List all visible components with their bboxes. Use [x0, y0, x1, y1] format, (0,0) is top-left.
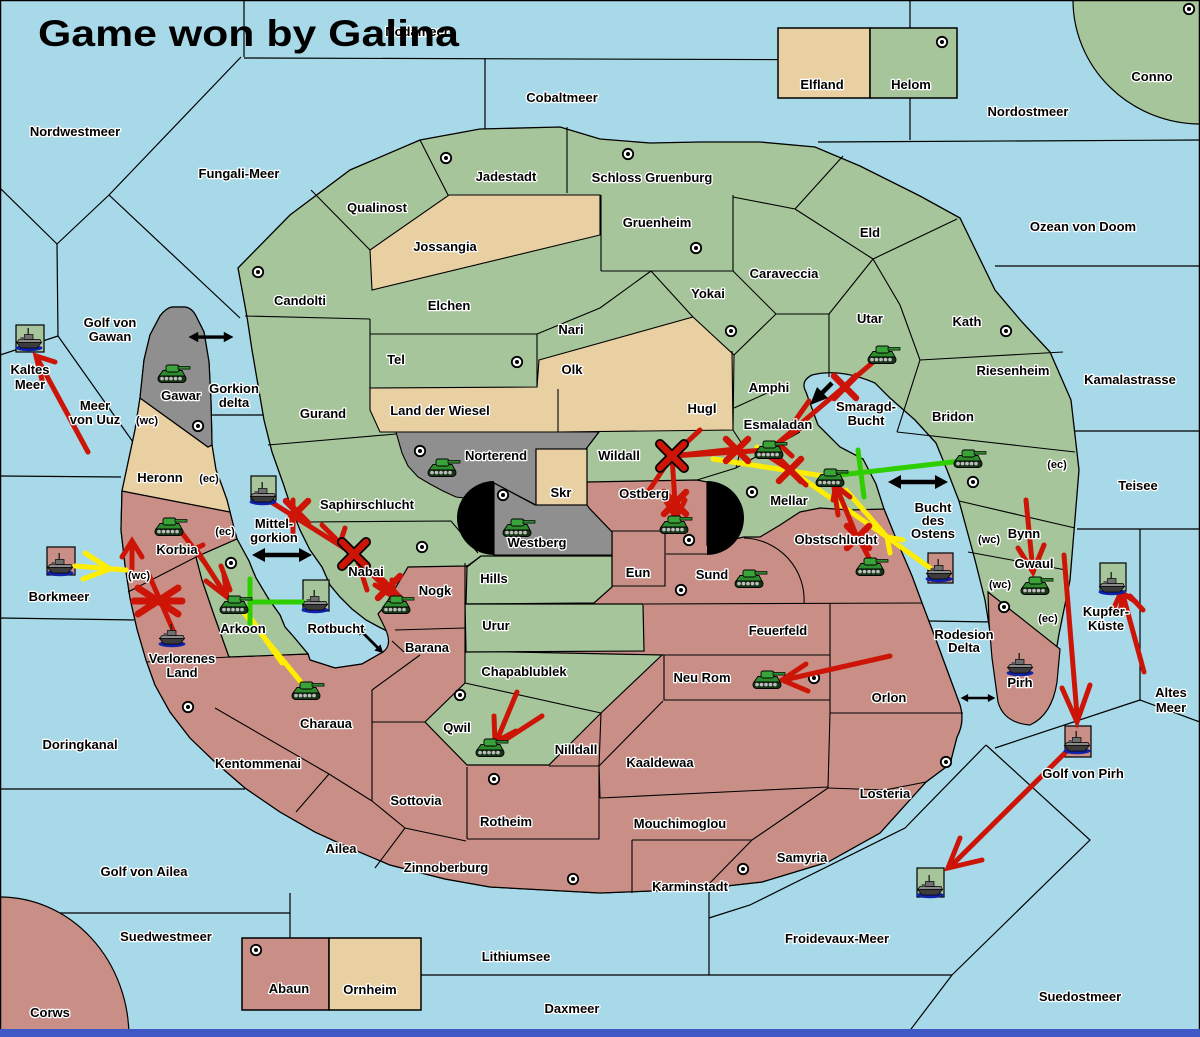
- svg-text:(wc): (wc): [136, 415, 158, 427]
- svg-text:(wc): (wc): [989, 579, 1011, 591]
- svg-text:Smaragd-: Smaragd-: [836, 399, 896, 414]
- svg-text:Helom: Helom: [891, 77, 931, 92]
- svg-text:Kamalastrasse: Kamalastrasse: [1084, 372, 1176, 387]
- svg-text:Nilldall: Nilldall: [555, 742, 598, 757]
- svg-text:Neu Rom: Neu Rom: [673, 670, 730, 685]
- svg-text:Gwaul: Gwaul: [1014, 556, 1053, 571]
- svg-text:Verlorenes: Verlorenes: [149, 651, 216, 666]
- svg-text:Game won by Galina: Game won by Galina: [38, 13, 459, 54]
- svg-text:Arkoon: Arkoon: [220, 621, 266, 636]
- svg-text:Altes: Altes: [1155, 685, 1187, 700]
- svg-text:Karminstadt: Karminstadt: [652, 879, 729, 894]
- svg-text:Kaltes: Kaltes: [10, 362, 49, 377]
- svg-text:Feuerfeld: Feuerfeld: [749, 623, 808, 638]
- svg-text:Kaaldewaa: Kaaldewaa: [626, 755, 694, 770]
- svg-text:Gruenheim: Gruenheim: [623, 215, 692, 230]
- svg-text:Doringkanal: Doringkanal: [42, 737, 117, 752]
- svg-text:Suedostmeer: Suedostmeer: [1039, 989, 1121, 1004]
- svg-text:Fungali-Meer: Fungali-Meer: [199, 166, 280, 181]
- svg-text:Utar: Utar: [857, 311, 883, 326]
- svg-text:Sottovia: Sottovia: [390, 793, 442, 808]
- svg-text:Hugl: Hugl: [688, 401, 717, 416]
- svg-text:Samyria: Samyria: [777, 850, 828, 865]
- svg-text:Charaua: Charaua: [300, 716, 353, 731]
- svg-text:Nari: Nari: [558, 322, 583, 337]
- svg-text:Rotheim: Rotheim: [480, 814, 532, 829]
- svg-text:Westberg: Westberg: [508, 535, 567, 550]
- svg-text:Yokai: Yokai: [691, 286, 725, 301]
- svg-text:Nordostmeer: Nordostmeer: [988, 104, 1069, 119]
- svg-text:delta: delta: [219, 395, 250, 410]
- svg-text:Rotbucht: Rotbucht: [307, 621, 365, 636]
- svg-text:Elchen: Elchen: [428, 298, 471, 313]
- svg-text:Ostens: Ostens: [911, 526, 955, 541]
- svg-text:Losteria: Losteria: [860, 786, 911, 801]
- svg-text:Ostberg: Ostberg: [619, 486, 669, 501]
- svg-text:(ec): (ec): [1047, 459, 1067, 471]
- svg-text:Skr: Skr: [551, 485, 572, 500]
- svg-text:Golf von Ailea: Golf von Ailea: [101, 864, 189, 879]
- svg-text:Abaun: Abaun: [269, 981, 310, 996]
- svg-text:Land der Wiesel: Land der Wiesel: [390, 403, 490, 418]
- svg-text:Cobaltmeer: Cobaltmeer: [526, 90, 598, 105]
- svg-text:Gorkion: Gorkion: [209, 381, 259, 396]
- svg-text:Ornheim: Ornheim: [343, 982, 396, 997]
- svg-text:Mouchimoglou: Mouchimoglou: [634, 816, 726, 831]
- svg-text:Tel: Tel: [387, 352, 405, 367]
- svg-text:Korbia: Korbia: [156, 542, 198, 557]
- svg-text:Bynn: Bynn: [1008, 526, 1041, 541]
- svg-text:Olk: Olk: [562, 362, 584, 377]
- svg-text:Urur: Urur: [482, 618, 509, 633]
- svg-text:Kentommenai: Kentommenai: [215, 756, 301, 771]
- svg-text:Mittel-: Mittel-: [255, 516, 293, 531]
- svg-text:Barana: Barana: [405, 640, 450, 655]
- svg-text:Conno: Conno: [1131, 69, 1172, 84]
- svg-text:(ec): (ec): [215, 526, 235, 538]
- svg-text:Esmaladan: Esmaladan: [744, 417, 813, 432]
- svg-text:Froidevaux-Meer: Froidevaux-Meer: [785, 931, 889, 946]
- svg-text:Qwil: Qwil: [443, 720, 470, 735]
- svg-text:Corws: Corws: [30, 1005, 70, 1020]
- svg-text:(ec): (ec): [199, 473, 219, 485]
- svg-text:Golf von Pirh: Golf von Pirh: [1042, 766, 1124, 781]
- svg-text:von Uuz: von Uuz: [70, 412, 121, 427]
- svg-text:Chapablublek: Chapablublek: [481, 664, 567, 679]
- svg-text:Bridon: Bridon: [932, 409, 974, 424]
- svg-text:Schloss Gruenburg: Schloss Gruenburg: [592, 170, 713, 185]
- svg-text:Nordwestmeer: Nordwestmeer: [30, 124, 120, 139]
- svg-text:Jadestadt: Jadestadt: [476, 169, 537, 184]
- svg-text:Lithiumsee: Lithiumsee: [482, 949, 551, 964]
- svg-text:Land: Land: [166, 665, 197, 680]
- svg-text:Golf von: Golf von: [84, 315, 137, 330]
- svg-text:Meer: Meer: [1156, 700, 1186, 715]
- svg-text:Daxmeer: Daxmeer: [545, 1001, 600, 1016]
- svg-text:Jossangia: Jossangia: [413, 239, 477, 254]
- svg-text:Candolti: Candolti: [274, 293, 326, 308]
- svg-text:Eld: Eld: [860, 225, 880, 240]
- svg-text:Meer: Meer: [15, 377, 45, 392]
- svg-text:Gurand: Gurand: [300, 406, 346, 421]
- svg-text:Heronn: Heronn: [137, 470, 183, 485]
- svg-text:Nabai: Nabai: [348, 564, 383, 579]
- svg-text:(wc): (wc): [978, 534, 1000, 546]
- svg-text:Gawan: Gawan: [89, 329, 132, 344]
- svg-text:(ec): (ec): [1038, 613, 1058, 625]
- svg-text:Kath: Kath: [953, 314, 982, 329]
- svg-text:Mellar: Mellar: [770, 493, 808, 508]
- svg-text:(wc): (wc): [128, 570, 150, 582]
- svg-text:Delta: Delta: [948, 640, 981, 655]
- svg-text:Borkmeer: Borkmeer: [29, 589, 90, 604]
- svg-text:Ozean von Doom: Ozean von Doom: [1030, 219, 1136, 234]
- svg-text:Eun: Eun: [626, 565, 651, 580]
- svg-text:Caraveccia: Caraveccia: [750, 266, 819, 281]
- svg-text:Gawar: Gawar: [161, 388, 201, 403]
- svg-text:Qualinost: Qualinost: [347, 200, 408, 215]
- svg-text:Riesenheim: Riesenheim: [977, 363, 1050, 378]
- svg-text:Ailea: Ailea: [325, 841, 357, 856]
- svg-text:Norterend: Norterend: [465, 448, 527, 463]
- svg-text:Nogk: Nogk: [419, 583, 452, 598]
- svg-text:Wildall: Wildall: [598, 448, 640, 463]
- svg-text:Orlon: Orlon: [872, 690, 907, 705]
- svg-text:Kupfer-: Kupfer-: [1083, 604, 1129, 619]
- svg-text:Obstschlucht: Obstschlucht: [794, 532, 878, 547]
- svg-text:Pirh: Pirh: [1007, 675, 1032, 690]
- svg-text:Meer: Meer: [80, 398, 110, 413]
- svg-text:Sund: Sund: [696, 567, 729, 582]
- svg-text:Teisee: Teisee: [1118, 478, 1158, 493]
- svg-text:Saphirschlucht: Saphirschlucht: [320, 497, 415, 512]
- svg-text:Suedwestmeer: Suedwestmeer: [120, 929, 212, 944]
- svg-text:Bucht: Bucht: [848, 413, 886, 428]
- svg-text:Zinnoberburg: Zinnoberburg: [404, 860, 489, 875]
- svg-text:Küste: Küste: [1088, 618, 1124, 633]
- svg-text:Elfland: Elfland: [800, 77, 843, 92]
- svg-text:Hills: Hills: [480, 571, 507, 586]
- svg-text:gorkion: gorkion: [250, 530, 298, 545]
- svg-text:Amphi: Amphi: [749, 380, 789, 395]
